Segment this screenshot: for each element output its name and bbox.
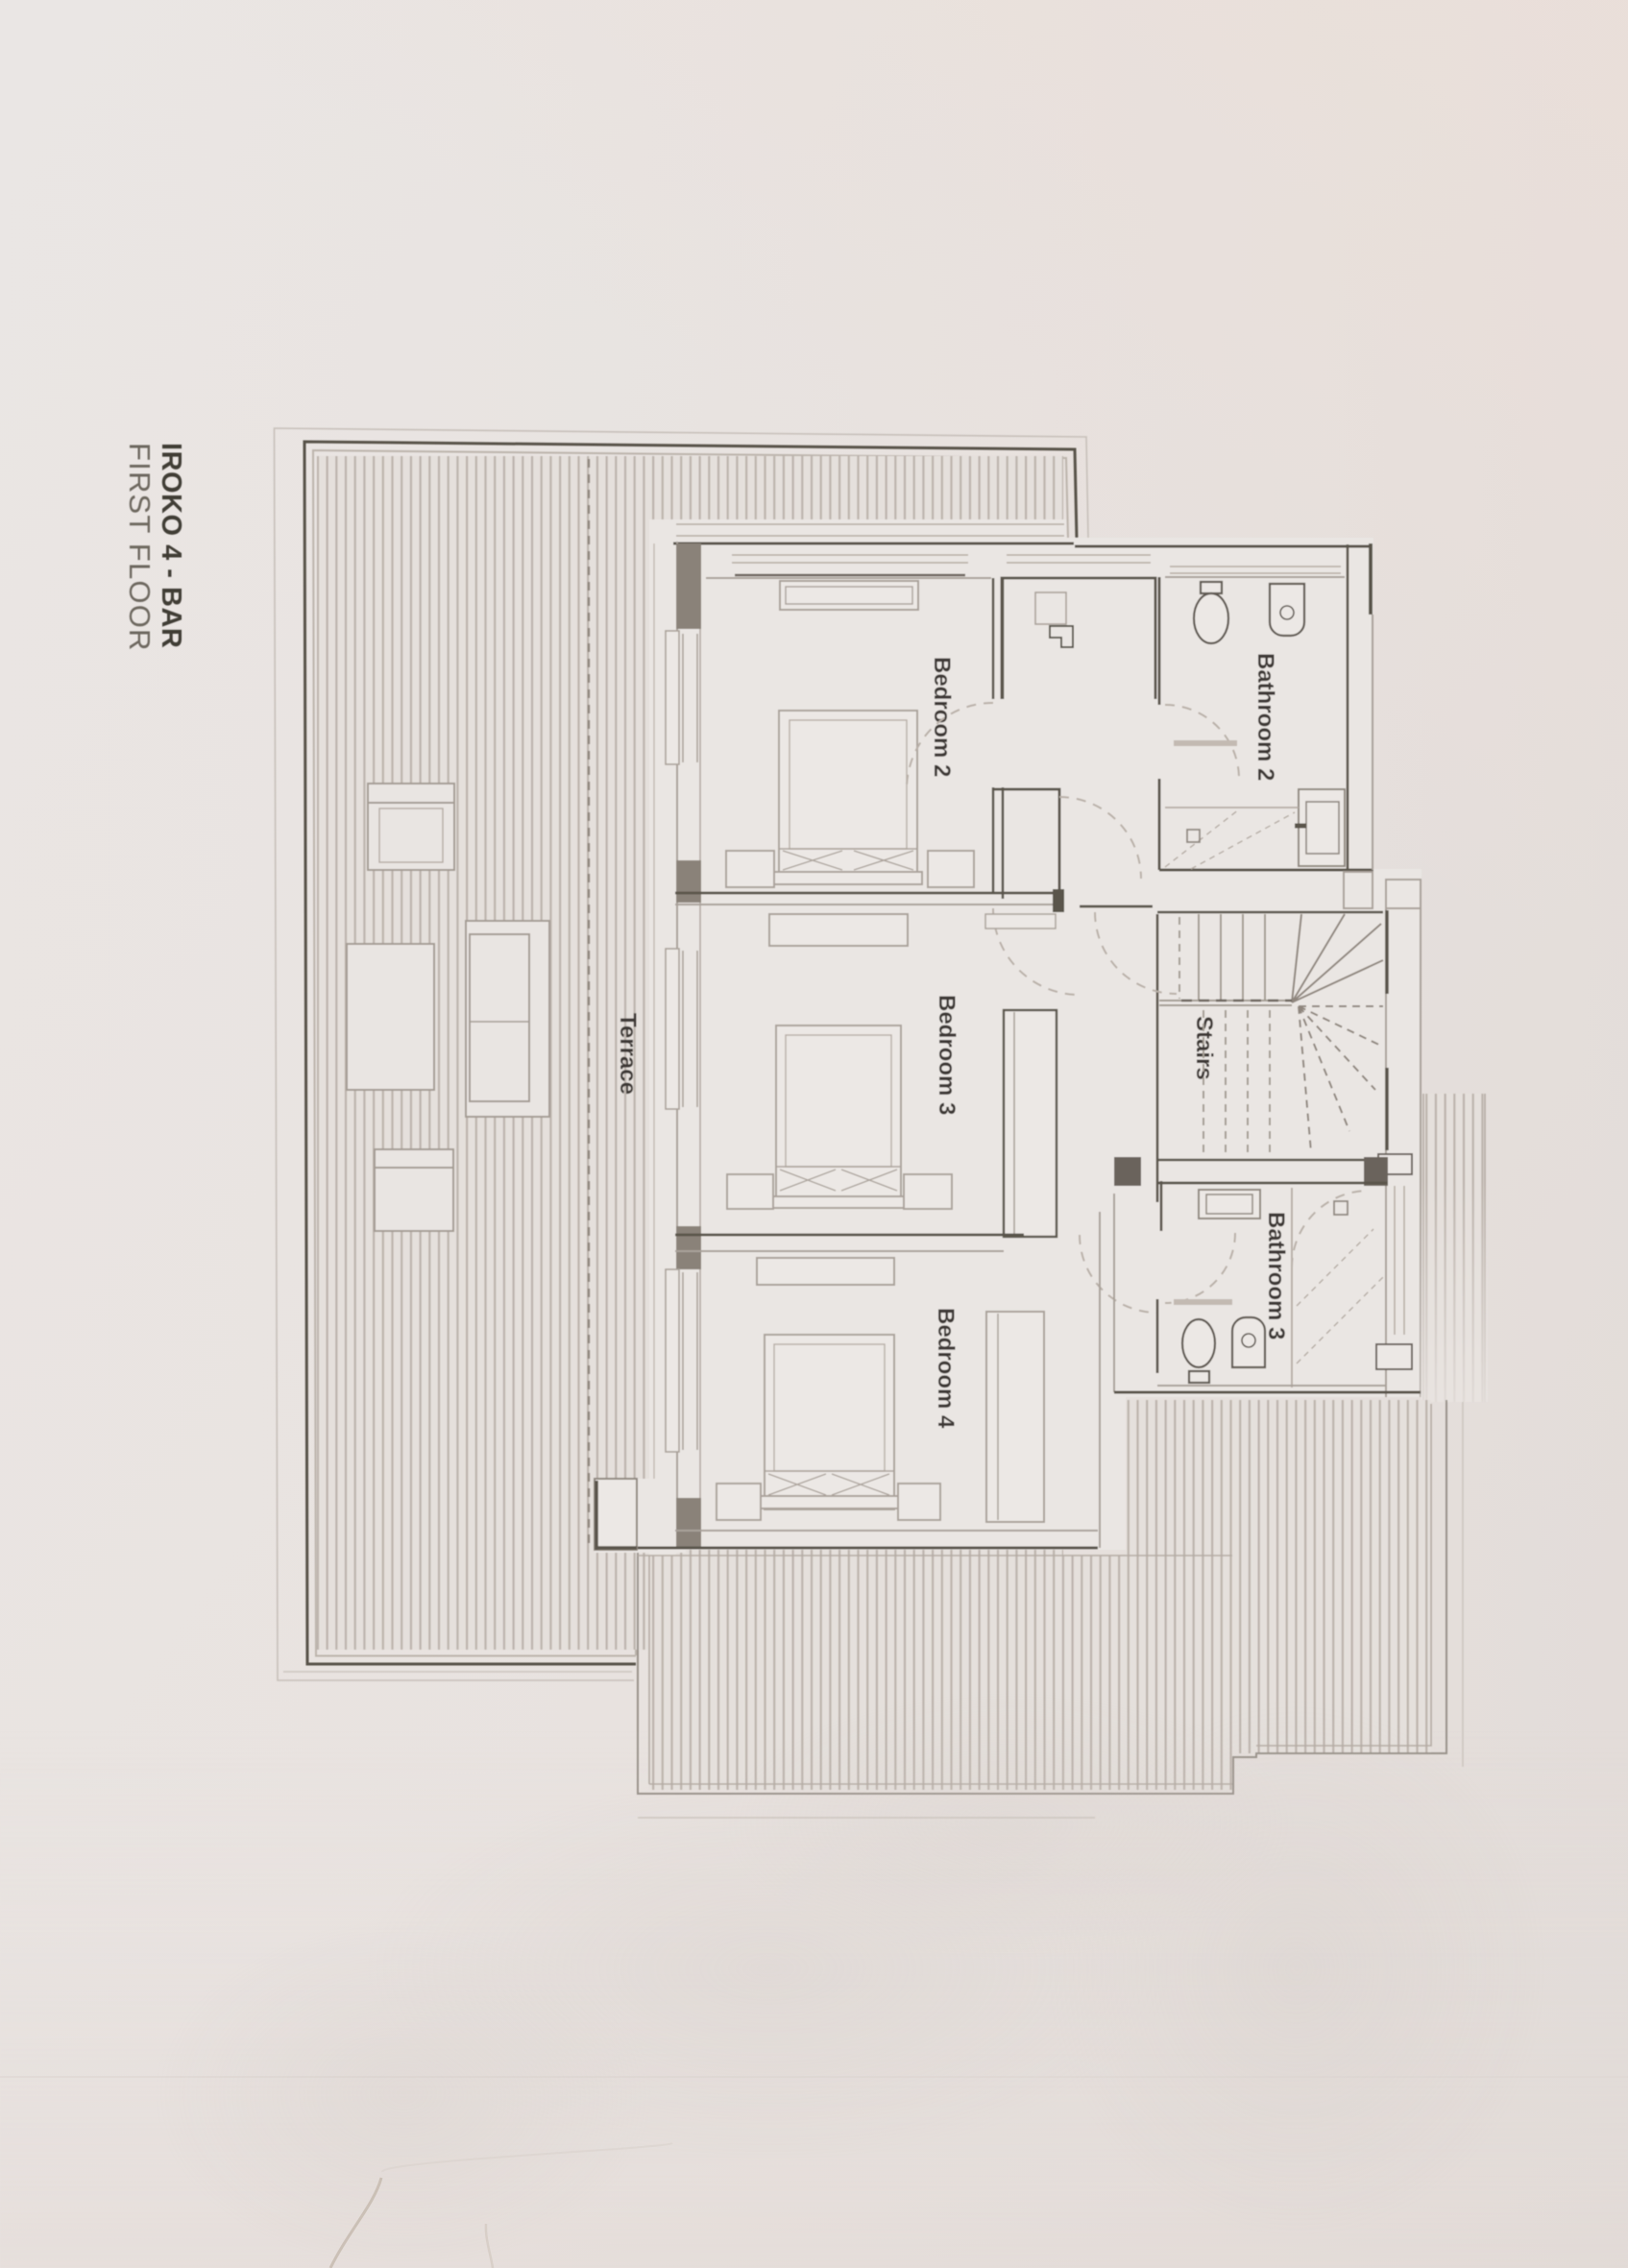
svg-text:Bedroom 3: Bedroom 3: [934, 995, 960, 1115]
svg-text:Bedroom 2: Bedroom 2: [929, 657, 955, 777]
svg-text:IROKO 4 - BAR: IROKO 4 - BAR: [156, 443, 186, 648]
svg-text:Bathroom 3: Bathroom 3: [1263, 1212, 1289, 1339]
svg-text:Bathroom 2: Bathroom 2: [1252, 653, 1278, 781]
svg-text:Bedroom 4: Bedroom 4: [933, 1308, 959, 1429]
svg-text:Terrace: Terrace: [615, 1013, 641, 1095]
svg-text:FIRST FLOOR: FIRST FLOOR: [123, 443, 157, 652]
